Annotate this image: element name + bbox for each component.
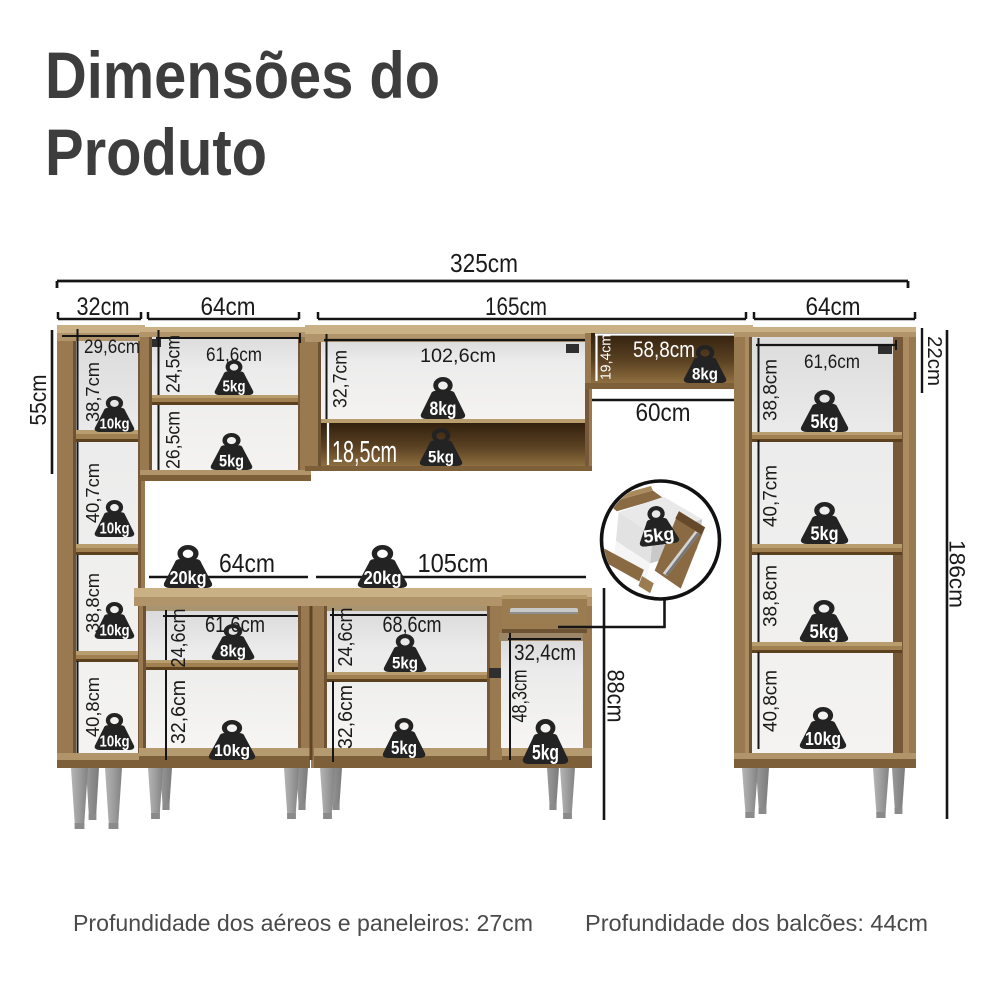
svg-text:38,8cm: 38,8cm [761,565,782,627]
svg-text:20kg: 20kg [364,568,402,588]
svg-text:60cm: 60cm [636,399,691,427]
svg-text:10kg: 10kg [100,734,130,751]
svg-text:40,8cm: 40,8cm [761,670,782,732]
svg-text:40,8cm: 40,8cm [83,677,103,737]
svg-text:Profundidade dos aéreos e pane: Profundidade dos aéreos e paneleiros: 27… [73,910,533,936]
svg-text:5kg: 5kg [532,742,559,765]
svg-text:32,4cm: 32,4cm [514,640,576,665]
svg-text:Dimensões do: Dimensões do [45,38,440,112]
svg-text:10kg: 10kg [214,741,250,760]
svg-text:64cm: 64cm [806,293,861,321]
svg-text:10kg: 10kg [100,416,130,433]
svg-text:61,6cm: 61,6cm [804,352,860,373]
svg-text:5kg: 5kg [219,452,244,471]
svg-text:20kg: 20kg [170,568,207,588]
svg-text:5kg: 5kg [642,523,675,547]
svg-text:24,6cm: 24,6cm [335,608,357,667]
svg-text:32cm: 32cm [77,293,130,321]
svg-text:5kg: 5kg [428,447,454,466]
svg-text:58,8cm: 58,8cm [633,337,695,362]
svg-text:Profundidade dos balcões: 44cm: Profundidade dos balcões: 44cm [585,910,928,936]
svg-text:22cm: 22cm [923,336,945,386]
svg-text:10kg: 10kg [100,623,130,640]
svg-text:102,6cm: 102,6cm [420,346,496,367]
svg-text:24,6cm: 24,6cm [168,609,190,668]
svg-text:38,8cm: 38,8cm [761,359,782,421]
svg-text:5kg: 5kg [392,653,418,672]
svg-text:24,5cm: 24,5cm [164,335,185,393]
svg-text:5kg: 5kg [223,379,246,396]
svg-text:5kg: 5kg [811,412,839,433]
svg-text:55cm: 55cm [25,375,51,426]
svg-text:32,6cm: 32,6cm [168,680,190,744]
svg-text:105cm: 105cm [418,548,489,578]
svg-text:64cm: 64cm [201,293,256,321]
svg-text:88cm: 88cm [602,670,629,723]
svg-text:68,6cm: 68,6cm [383,612,442,637]
svg-text:64cm: 64cm [219,548,275,578]
svg-text:18,5cm: 18,5cm [332,434,397,469]
svg-text:38,7cm: 38,7cm [83,362,103,422]
svg-text:8kg: 8kg [220,642,246,661]
svg-text:29,6cm: 29,6cm [84,337,140,358]
svg-text:5kg: 5kg [391,738,417,758]
svg-text:186cm: 186cm [945,540,970,608]
svg-text:26,5cm: 26,5cm [164,411,185,469]
svg-text:19,4cm: 19,4cm [598,334,615,380]
svg-text:32,6cm: 32,6cm [335,685,357,749]
svg-text:40,7cm: 40,7cm [83,463,103,523]
svg-text:5kg: 5kg [811,524,839,545]
svg-text:10kg: 10kg [100,521,130,538]
svg-text:8kg: 8kg [692,364,718,383]
svg-text:325cm: 325cm [450,248,518,278]
svg-text:10kg: 10kg [805,729,841,749]
svg-text:5kg: 5kg [810,622,839,643]
svg-text:32,7cm: 32,7cm [331,350,352,408]
svg-text:Produto: Produto [45,115,267,189]
svg-text:8kg: 8kg [430,399,457,420]
svg-text:165cm: 165cm [485,293,547,321]
svg-text:48,3cm: 48,3cm [509,670,532,723]
svg-text:40,7cm: 40,7cm [761,465,782,527]
